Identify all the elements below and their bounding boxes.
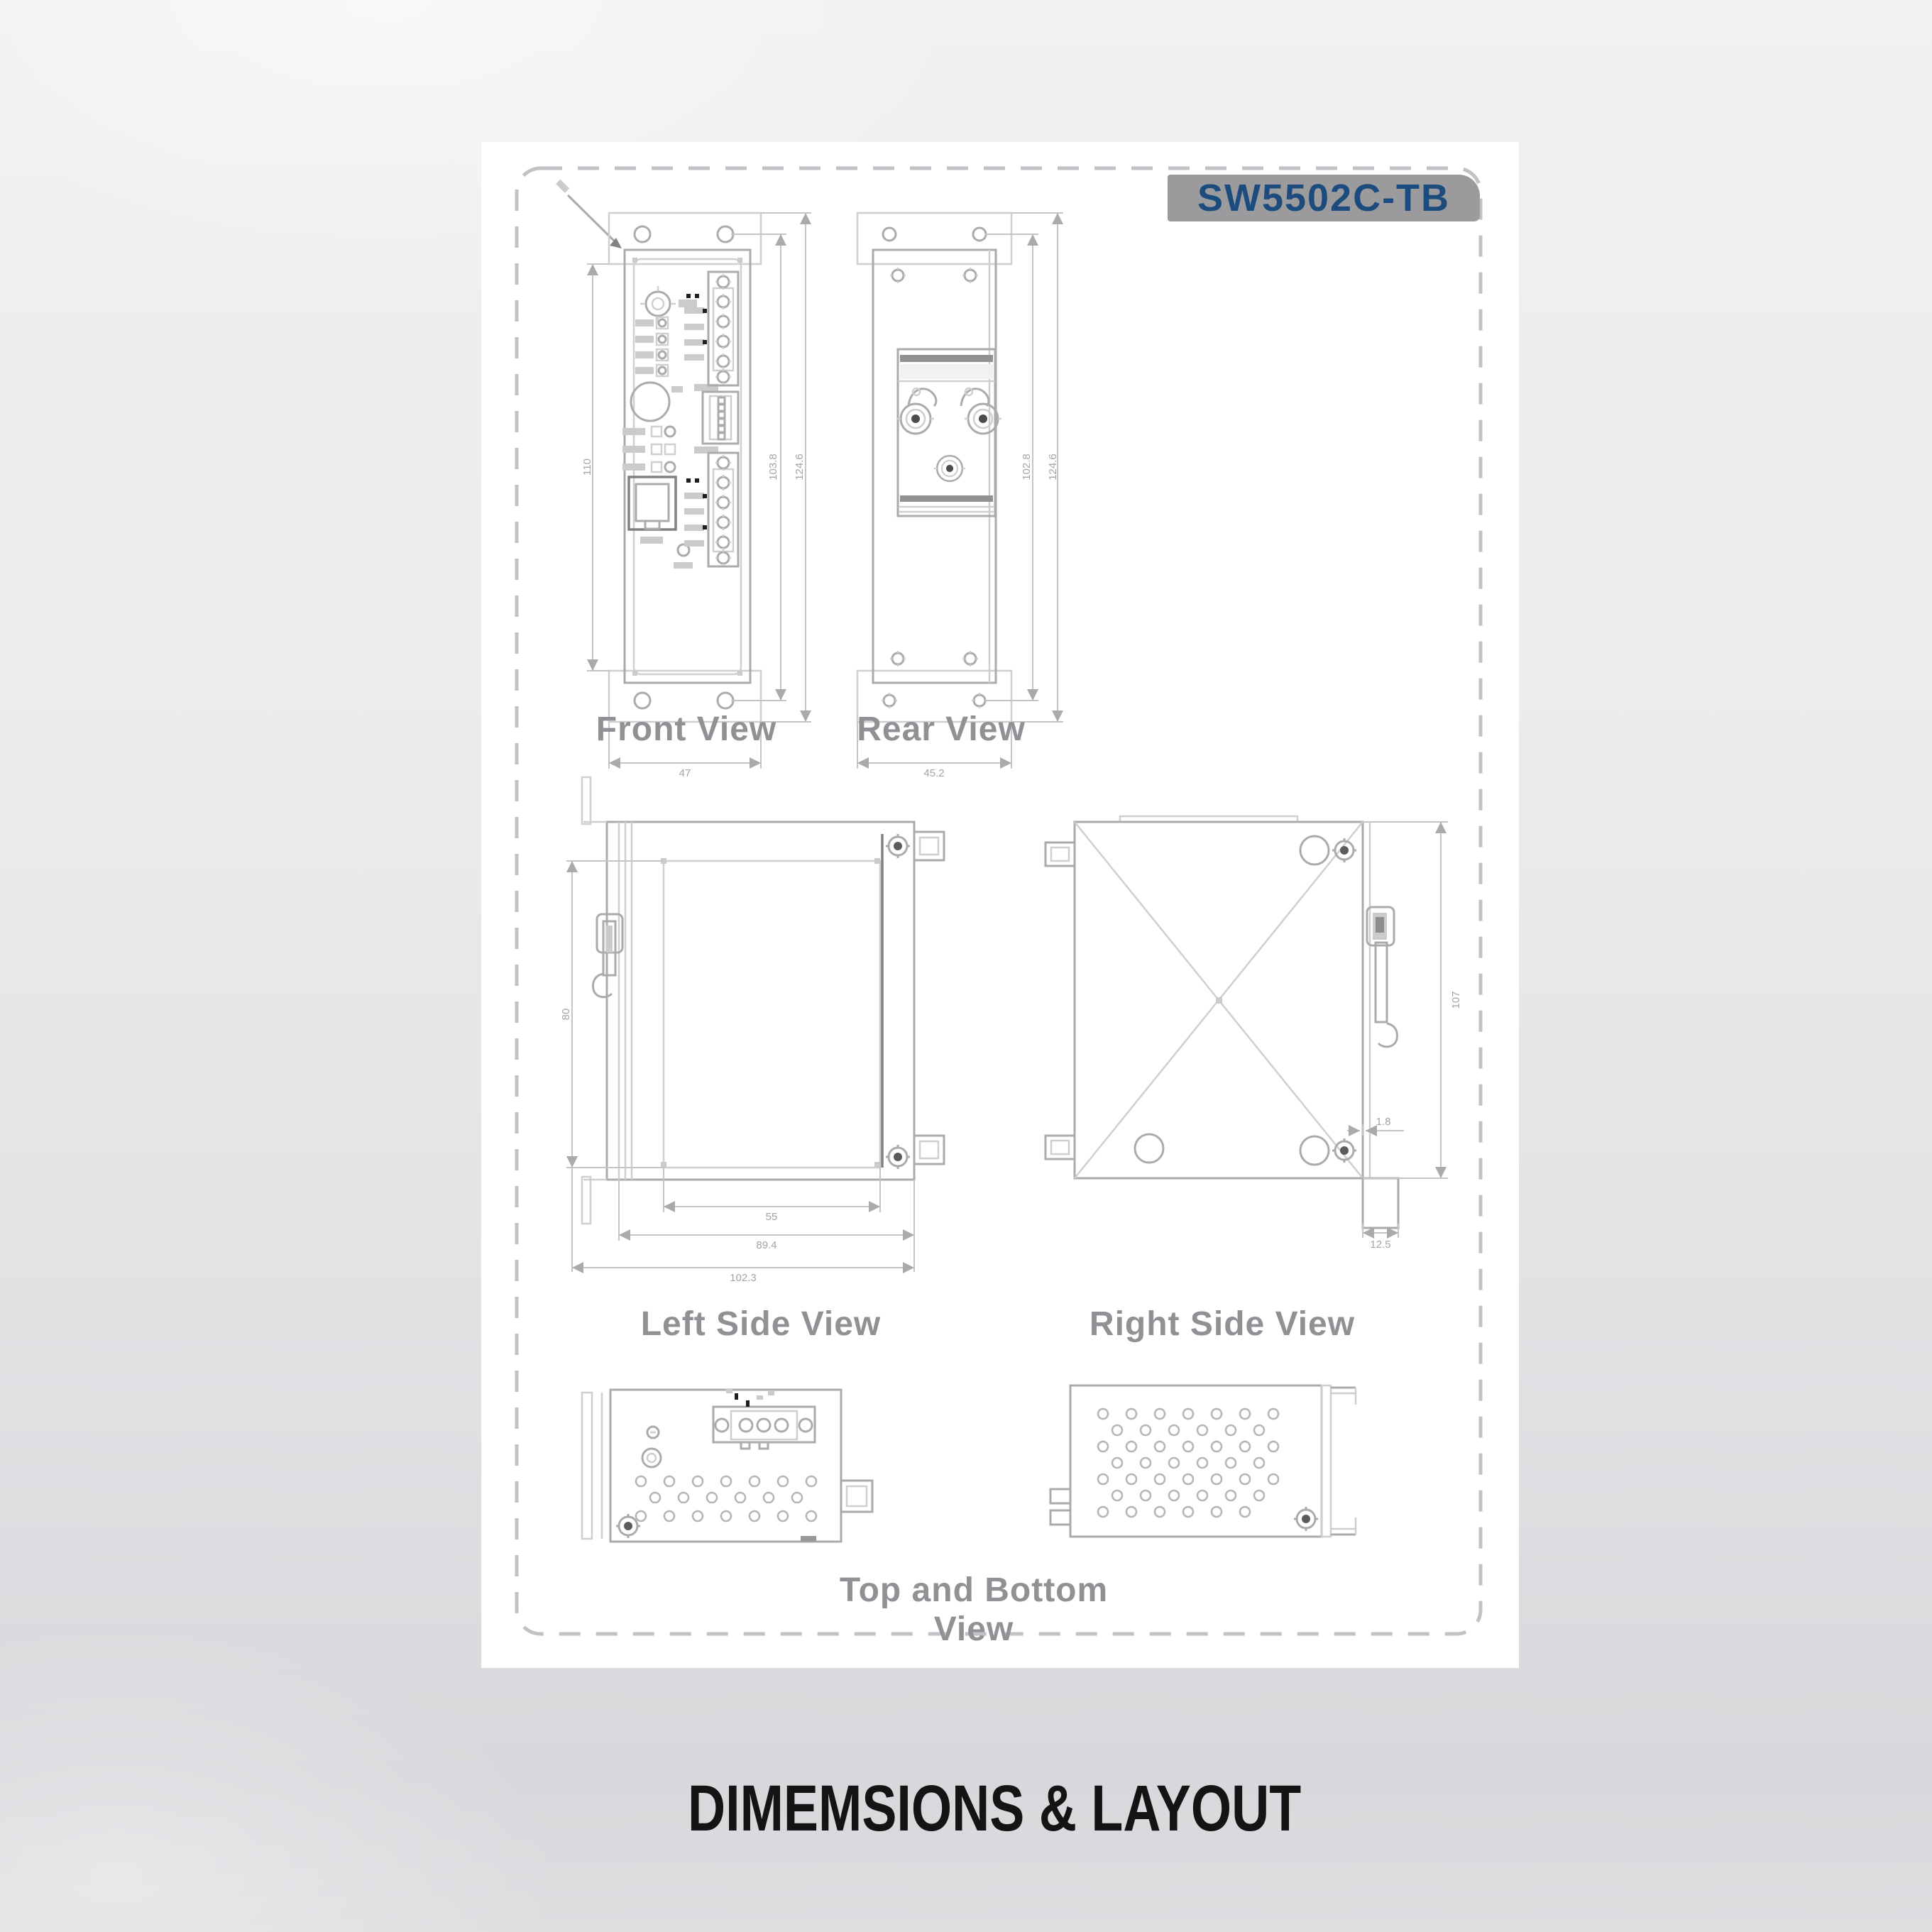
front-height-dim: 110 [581, 435, 594, 499]
rear-width-dim: 45.2 [902, 767, 966, 780]
rear-overall-height-dim: 124.6 [1047, 435, 1060, 499]
right-clip-depth-dim: 12.5 [1349, 1239, 1412, 1251]
left-overall-depth-dim: 102.3 [711, 1272, 775, 1285]
technical-drawing-canvas [481, 142, 1519, 1668]
product-datasheet-page: SW5502C-TB Front View Rear View Left Sid… [481, 142, 1519, 1668]
left-side-view-drawing [566, 777, 944, 1272]
right-overall-height-dim: 107 [1450, 968, 1463, 1032]
front-overall-height-dim: 124.6 [794, 435, 806, 499]
stage: SW5502C-TB Front View Rear View Left Sid… [0, 0, 1932, 1932]
top-bottom-view-label: Top and Bottom View [811, 1571, 1137, 1649]
footer-title-text: DIMEMSIONS & LAYOUT [688, 1772, 1301, 1846]
left-body-depth-dim: 89.4 [735, 1239, 798, 1252]
top-view-drawing [582, 1389, 872, 1542]
rear-view-label: Rear View [778, 710, 1104, 749]
right-clip-inset-dim: 1.8 [1351, 1116, 1415, 1129]
dashed-border [517, 168, 1481, 1634]
right-side-view-label: Right Side View [1059, 1305, 1385, 1344]
left-panel-depth-dim: 55 [740, 1211, 803, 1224]
front-width-dim: 47 [653, 767, 717, 780]
left-side-view-label: Left Side View [598, 1305, 924, 1344]
footer-title: DIMEMSIONS & LAYOUT [57, 1772, 1932, 1846]
left-panel-height-dim: 80 [560, 982, 573, 1046]
model-badge: SW5502C-TB [1168, 175, 1480, 221]
front-hole-pitch-dim: 103.8 [767, 435, 780, 499]
bottom-view-drawing [1050, 1385, 1356, 1537]
rear-hole-pitch-dim: 102.8 [1021, 435, 1033, 499]
right-side-view-drawing [1045, 816, 1448, 1238]
